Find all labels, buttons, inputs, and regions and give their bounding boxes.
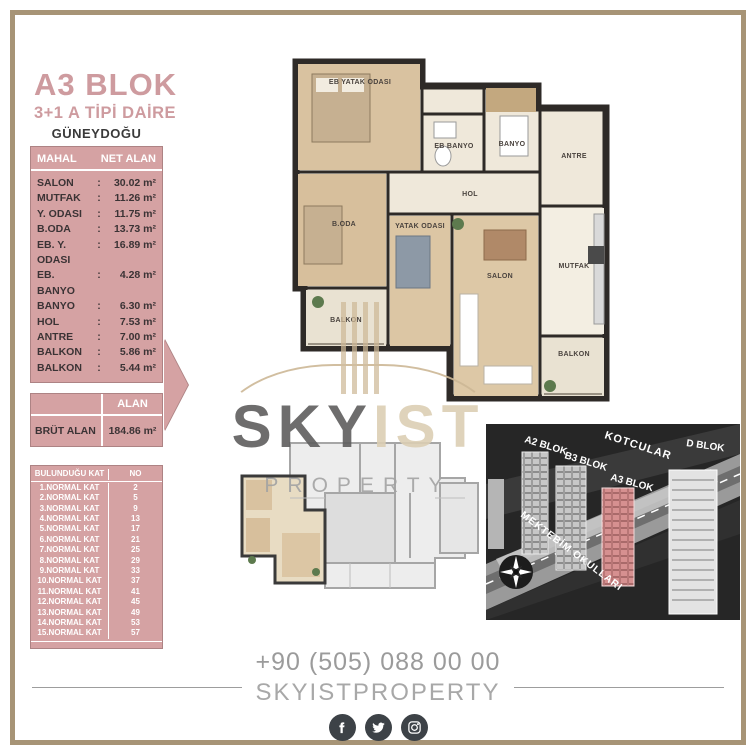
room-label-boda: B.ODA <box>332 221 356 228</box>
table-row: ANTRE:7.00 m² <box>37 330 156 345</box>
phone-number: +90 (505) 088 00 00 <box>0 648 756 677</box>
room-area: 7.00 m² <box>104 330 156 345</box>
unit-no: 5 <box>109 493 162 503</box>
col-area-header: NET ALAN <box>101 153 156 165</box>
unit-no: 29 <box>109 556 162 566</box>
room-label: B.ODA <box>37 222 94 237</box>
footer: +90 (505) 088 00 00 SKYISTPROPERTY <box>0 648 756 741</box>
gross-area-value: 184.86 m² <box>103 416 162 446</box>
table-row: EB. BANYO:4.28 m² <box>37 268 156 299</box>
room-area: 13.73 m² <box>104 222 156 237</box>
unit-no: 53 <box>109 618 162 628</box>
compass-rose <box>499 555 533 589</box>
banyo-wood-strip <box>486 88 536 112</box>
room-label-antre: ANTRE <box>561 153 587 160</box>
room-label-balkon-right: BALKON <box>558 351 590 358</box>
instagram-icon[interactable] <box>401 714 428 741</box>
unit-no: 25 <box>109 545 162 555</box>
table-row: B.ODA:13.73 m² <box>37 222 156 237</box>
room-area: 11.26 m² <box>104 191 156 206</box>
col-room-header: MAHAL <box>37 153 77 165</box>
colon: : <box>94 238 104 253</box>
floor-label: 13.NORMAL KAT <box>31 608 109 618</box>
room-label-hol: HOL <box>462 191 478 198</box>
room-label: MUTFAK <box>37 191 94 206</box>
colon: : <box>94 207 104 222</box>
colon: : <box>94 299 104 314</box>
unit-type-subtitle: 3+1 A TİPİ DAİRE <box>34 104 190 123</box>
alan-header: ALAN <box>103 394 162 414</box>
room-label: EB. Y. ODASI <box>37 238 94 269</box>
twitter-icon[interactable] <box>365 714 392 741</box>
unit-no: 37 <box>109 576 162 586</box>
room-label: HOL <box>37 315 94 330</box>
floor-label: 4.NORMAL KAT <box>31 514 109 524</box>
colon: : <box>94 361 104 376</box>
room-label: ANTRE <box>37 330 94 345</box>
table-row: 7.NORMAL KAT25 <box>31 545 162 555</box>
unit-no: 17 <box>109 524 162 534</box>
floorplan-svg: EB YATAK ODASI EB BANYO BANYO ANTRE HOL … <box>288 56 612 424</box>
floor-key-plan <box>230 438 480 618</box>
table-row: Y. ODASI:11.75 m² <box>37 207 156 222</box>
footer-rule-left <box>32 687 242 688</box>
gross-area-header: ALAN <box>31 394 162 416</box>
room-label: Y. ODASI <box>37 207 94 222</box>
unit-no: 41 <box>109 587 162 597</box>
footer-rule-right <box>514 687 724 688</box>
colon: : <box>94 191 104 206</box>
room-label: EB. BANYO <box>37 268 94 299</box>
gross-area-label: BRÜT ALAN <box>31 416 103 446</box>
floor-label: 15.NORMAL KAT <box>31 628 109 638</box>
col-no-header: NO <box>109 469 162 479</box>
table-row: 1.NORMAL KAT2 <box>31 483 162 493</box>
room-label: BANYO <box>37 299 94 314</box>
floor-label: 5.NORMAL KAT <box>31 524 109 534</box>
floor-number-table: BULUNDUĞU KAT NO 1.NORMAL KAT2 2.NORMAL … <box>30 465 163 649</box>
room-label: SALON <box>37 176 94 191</box>
unit-no: 57 <box>109 628 162 638</box>
floor-label: 14.NORMAL KAT <box>31 618 109 628</box>
room-label-yatak: YATAK ODASI <box>395 223 445 230</box>
gross-area-row: BRÜT ALAN 184.86 m² <box>31 416 162 446</box>
apartment-floorplan: EB YATAK ODASI EB BANYO BANYO ANTRE HOL … <box>288 56 612 424</box>
net-area-table-header: MAHAL NET ALAN <box>31 147 162 171</box>
key-plan-svg <box>230 438 480 618</box>
colon: : <box>94 268 104 283</box>
info-column: A3 BLOK 3+1 A TİPİ DAİRE GÜNEYDOĞU MAHAL… <box>30 68 190 649</box>
room-label-banyo: BANYO <box>499 141 526 148</box>
unit-no: 49 <box>109 608 162 618</box>
col-floor-header: BULUNDUĞU KAT <box>31 469 109 479</box>
colon: : <box>94 345 104 360</box>
table-row: BANYO:6.30 m² <box>37 299 156 314</box>
table-row: HOL:7.53 m² <box>37 315 156 330</box>
colon: : <box>94 330 104 345</box>
table-row: EB. Y. ODASI:16.89 m² <box>37 238 156 269</box>
colon: : <box>94 315 104 330</box>
table-row: 13.NORMAL KAT49 <box>31 608 162 618</box>
unit-no: 21 <box>109 535 162 545</box>
floor-label: 11.NORMAL KAT <box>31 587 109 597</box>
unit-no: 45 <box>109 597 162 607</box>
gross-area-table: ALAN BRÜT ALAN 184.86 m² <box>30 393 163 447</box>
floor-label: 9.NORMAL KAT <box>31 566 109 576</box>
room-area: 5.44 m² <box>104 361 156 376</box>
facebook-icon[interactable] <box>329 714 356 741</box>
room-area: 7.53 m² <box>104 315 156 330</box>
table-row: 6.NORMAL KAT21 <box>31 535 162 545</box>
arrow-pointer <box>164 339 188 431</box>
building-a2 <box>522 452 548 554</box>
table-row: 8.NORMAL KAT29 <box>31 556 162 566</box>
table-row: 5.NORMAL KAT17 <box>31 524 162 534</box>
room-area: 5.86 m² <box>104 345 156 360</box>
room-area: 6.30 m² <box>104 299 156 314</box>
colon: : <box>94 176 104 191</box>
site-aerial-view: A2 BLOK B3 BLOK A3 BLOK D BLOK KOTCULAR … <box>486 424 740 620</box>
floor-label: 12.NORMAL KAT <box>31 597 109 607</box>
building-far-left <box>488 479 504 549</box>
floor-label: 7.NORMAL KAT <box>31 545 109 555</box>
unit-no: 9 <box>109 504 162 514</box>
floor-label: 3.NORMAL KAT <box>31 504 109 514</box>
site-view-svg: A2 BLOK B3 BLOK A3 BLOK D BLOK KOTCULAR … <box>486 424 740 620</box>
empty-cell <box>31 394 103 414</box>
table-row: 2.NORMAL KAT5 <box>31 493 162 503</box>
social-icons-row <box>0 714 756 741</box>
net-area-rows: SALON:30.02 m² MUTFAK:11.26 m² Y. ODASI:… <box>31 171 162 382</box>
table-row: MUTFAK:11.26 m² <box>37 191 156 206</box>
brand-name: SKYISTPROPERTY <box>0 679 756 707</box>
page-title: A3 BLOK <box>34 68 190 102</box>
floor-label: 2.NORMAL KAT <box>31 493 109 503</box>
table-row: 12.NORMAL KAT45 <box>31 597 162 607</box>
table-row: 10.NORMAL KAT37 <box>31 576 162 586</box>
room-label-salon: SALON <box>487 273 513 280</box>
floor-label: 6.NORMAL KAT <box>31 535 109 545</box>
floor-label: 8.NORMAL KAT <box>31 556 109 566</box>
table-row: 3.NORMAL KAT9 <box>31 504 162 514</box>
room-label-balkon-left: BALKON <box>330 317 362 324</box>
table-row: 11.NORMAL KAT41 <box>31 587 162 597</box>
room-label-mutfak: MUTFAK <box>559 263 590 270</box>
room-area: 30.02 m² <box>104 176 156 191</box>
room-area: 4.28 m² <box>104 268 156 283</box>
unit-no: 13 <box>109 514 162 524</box>
table-row: 9.NORMAL KAT33 <box>31 566 162 576</box>
table-row: 4.NORMAL KAT13 <box>31 514 162 524</box>
floor-table-header: BULUNDUĞU KAT NO <box>31 469 162 481</box>
table-row: 14.NORMAL KAT53 <box>31 618 162 628</box>
colon: : <box>94 222 104 237</box>
floor-table-footer-line <box>31 641 162 644</box>
room-area: 11.75 m² <box>104 207 156 222</box>
orientation-label: GÜNEYDOĞU <box>34 126 159 141</box>
unit-no: 2 <box>109 483 162 493</box>
room-label: BALKON <box>37 345 94 360</box>
net-area-table: MAHAL NET ALAN SALON:30.02 m² MUTFAK:11.… <box>30 146 163 383</box>
floor-label: 10.NORMAL KAT <box>31 576 109 586</box>
unit-no: 33 <box>109 566 162 576</box>
table-row: BALKON:5.86 m² <box>37 345 156 360</box>
floor-label: 1.NORMAL KAT <box>31 483 109 493</box>
room-label: BALKON <box>37 361 94 376</box>
table-row: SALON:30.02 m² <box>37 176 156 191</box>
room-label-eb-banyo: EB BANYO <box>434 143 474 150</box>
building-d <box>669 470 717 614</box>
room-area: 16.89 m² <box>104 238 156 253</box>
table-row: 15.NORMAL KAT57 <box>31 628 162 638</box>
table-row: BALKON:5.44 m² <box>37 361 156 376</box>
room-label-eb-yatak: EB YATAK ODASI <box>329 79 391 86</box>
brochure-page: A3 BLOK 3+1 A TİPİ DAİRE GÜNEYDOĞU MAHAL… <box>0 0 756 756</box>
